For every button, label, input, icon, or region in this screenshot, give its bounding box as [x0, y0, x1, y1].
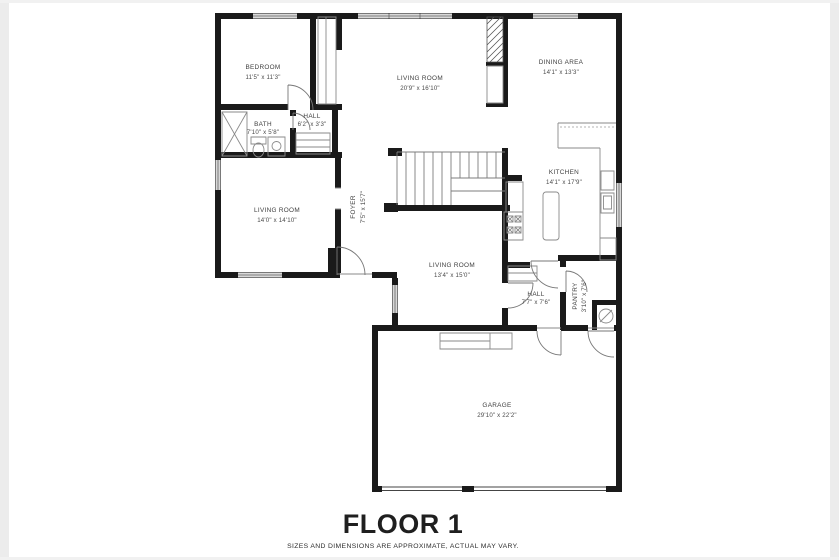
frame-top: [0, 0, 839, 3]
room-label-hall-lower: HALL: [527, 291, 544, 298]
room-label-bedroom: BEDROOM: [245, 64, 280, 71]
room-label-hall-upper: HALL: [303, 113, 320, 120]
frame-left: [0, 0, 9, 560]
room-dims-living-room-left: 14'0" x 14'10": [257, 217, 297, 224]
room-label-kitchen: KITCHEN: [549, 169, 579, 176]
room-label-garage: GARAGE: [482, 402, 511, 409]
bath-sink-icon: [272, 142, 281, 151]
room-dims-bedroom: 11'5" x 11'3": [245, 74, 280, 81]
room-dims-pantry: 3'10" x 7'6": [581, 280, 588, 312]
room-dims-living-room-top: 20'9" x 16'10": [400, 85, 440, 92]
chimney-hatch: [487, 17, 503, 103]
disclaimer: SIZES AND DIMENSIONS ARE APPROXIMATE, AC…: [287, 543, 519, 550]
frame-right: [830, 0, 839, 560]
room-label-pantry: PANTRY: [572, 282, 579, 310]
room-label-living-room-top: LIVING ROOM: [397, 75, 443, 82]
room-dims-foyer: 7'5" x 15'7": [360, 191, 367, 223]
room-dims-living-room-center: 13'4" x 15'0": [434, 272, 470, 279]
page-frame: [0, 0, 839, 560]
room-label-living-room-center: LIVING ROOM: [429, 262, 475, 269]
garage-doors: [382, 487, 606, 491]
room-label-dining-area: DINING AREA: [539, 59, 584, 66]
room-label-living-room-left: LIVING ROOM: [254, 207, 300, 214]
room-label-bath: BATH: [254, 121, 272, 128]
kitchen-island: [543, 192, 559, 240]
room-dims-dining-area: 14'1" x 13'3": [543, 69, 579, 76]
room-dims-garage: 29'10" x 22'2": [477, 412, 517, 419]
floor-plan-svg: BEDROOM 11'5" x 11'3" LIVING ROOM 20'9" …: [0, 0, 839, 560]
floor-plan-page: BEDROOM 11'5" x 11'3" LIVING ROOM 20'9" …: [0, 0, 839, 560]
room-dims-hall-lower: 7'7" x 7'6": [522, 299, 551, 306]
fireplace-niche: [487, 66, 503, 103]
stairs: [397, 152, 505, 205]
room-dims-hall-upper: 6'2" x 3'3": [298, 121, 327, 128]
room-dims-kitchen: 14'1" x 17'9": [546, 179, 582, 186]
page-title: FLOOR 1: [343, 509, 464, 539]
room-label-foyer: FOYER: [350, 195, 357, 219]
room-dims-bath: 7'10" x 5'8": [247, 129, 279, 136]
